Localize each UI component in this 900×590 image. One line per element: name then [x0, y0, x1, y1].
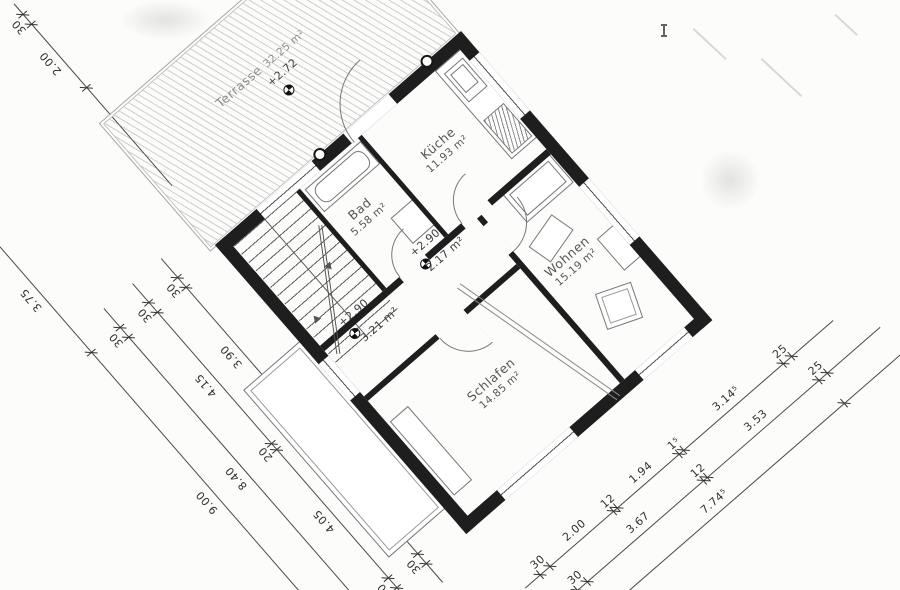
window-bottom-schlafen: [497, 427, 578, 500]
wall-flur-wohnen-a: [477, 215, 488, 226]
scan-smudge: [120, 0, 210, 40]
dimension-label: 2.00: [37, 49, 64, 78]
dimension-label: 4.05: [310, 507, 337, 536]
dimension-label: 4.15: [192, 371, 219, 400]
dimension-label: 30: [9, 17, 29, 37]
schlafen-door-arc: [440, 314, 494, 368]
dimension-label: 30: [163, 280, 183, 300]
wall-diele-schlafen: [364, 334, 440, 401]
scanned-floor-plan-sheet: 303.90204.3030304.15204.0530308.40303.75…: [0, 0, 900, 590]
room-label-bad: Bad 5.58 m²: [338, 189, 390, 239]
scan-artifact-cursor: [660, 24, 668, 37]
dimension-label: 9.00: [193, 488, 220, 517]
dimension-label: 30: [404, 556, 424, 576]
dimension-label: 3.53: [741, 407, 770, 434]
dimension-label: 1.94: [626, 459, 655, 486]
dimension-label: 20: [256, 444, 276, 464]
dimension-label: 3.75: [17, 286, 44, 315]
dimension-label: 8.40: [222, 464, 249, 493]
armchair: [595, 282, 643, 330]
window-bottom-wohnen: [635, 327, 693, 379]
dimension-label: 3.14⁵: [710, 383, 742, 413]
dimension-label: 7.74⁵: [698, 486, 730, 516]
room-label-kueche: Küche 11.93 m²: [414, 121, 471, 176]
scan-streak: [761, 58, 802, 97]
scan-smudge: [700, 150, 760, 210]
room-label-schlafen: Schlafen 14.85 m²: [464, 355, 527, 415]
dimension-label: 30: [106, 330, 126, 350]
dimension-label: 3.90: [218, 342, 245, 371]
dimension-label: 30: [135, 305, 155, 325]
dimension-label: 3.67: [624, 509, 653, 536]
scan-streak: [693, 28, 727, 60]
scan-streak: [835, 14, 858, 36]
dimension-label: 2.00: [560, 517, 589, 544]
